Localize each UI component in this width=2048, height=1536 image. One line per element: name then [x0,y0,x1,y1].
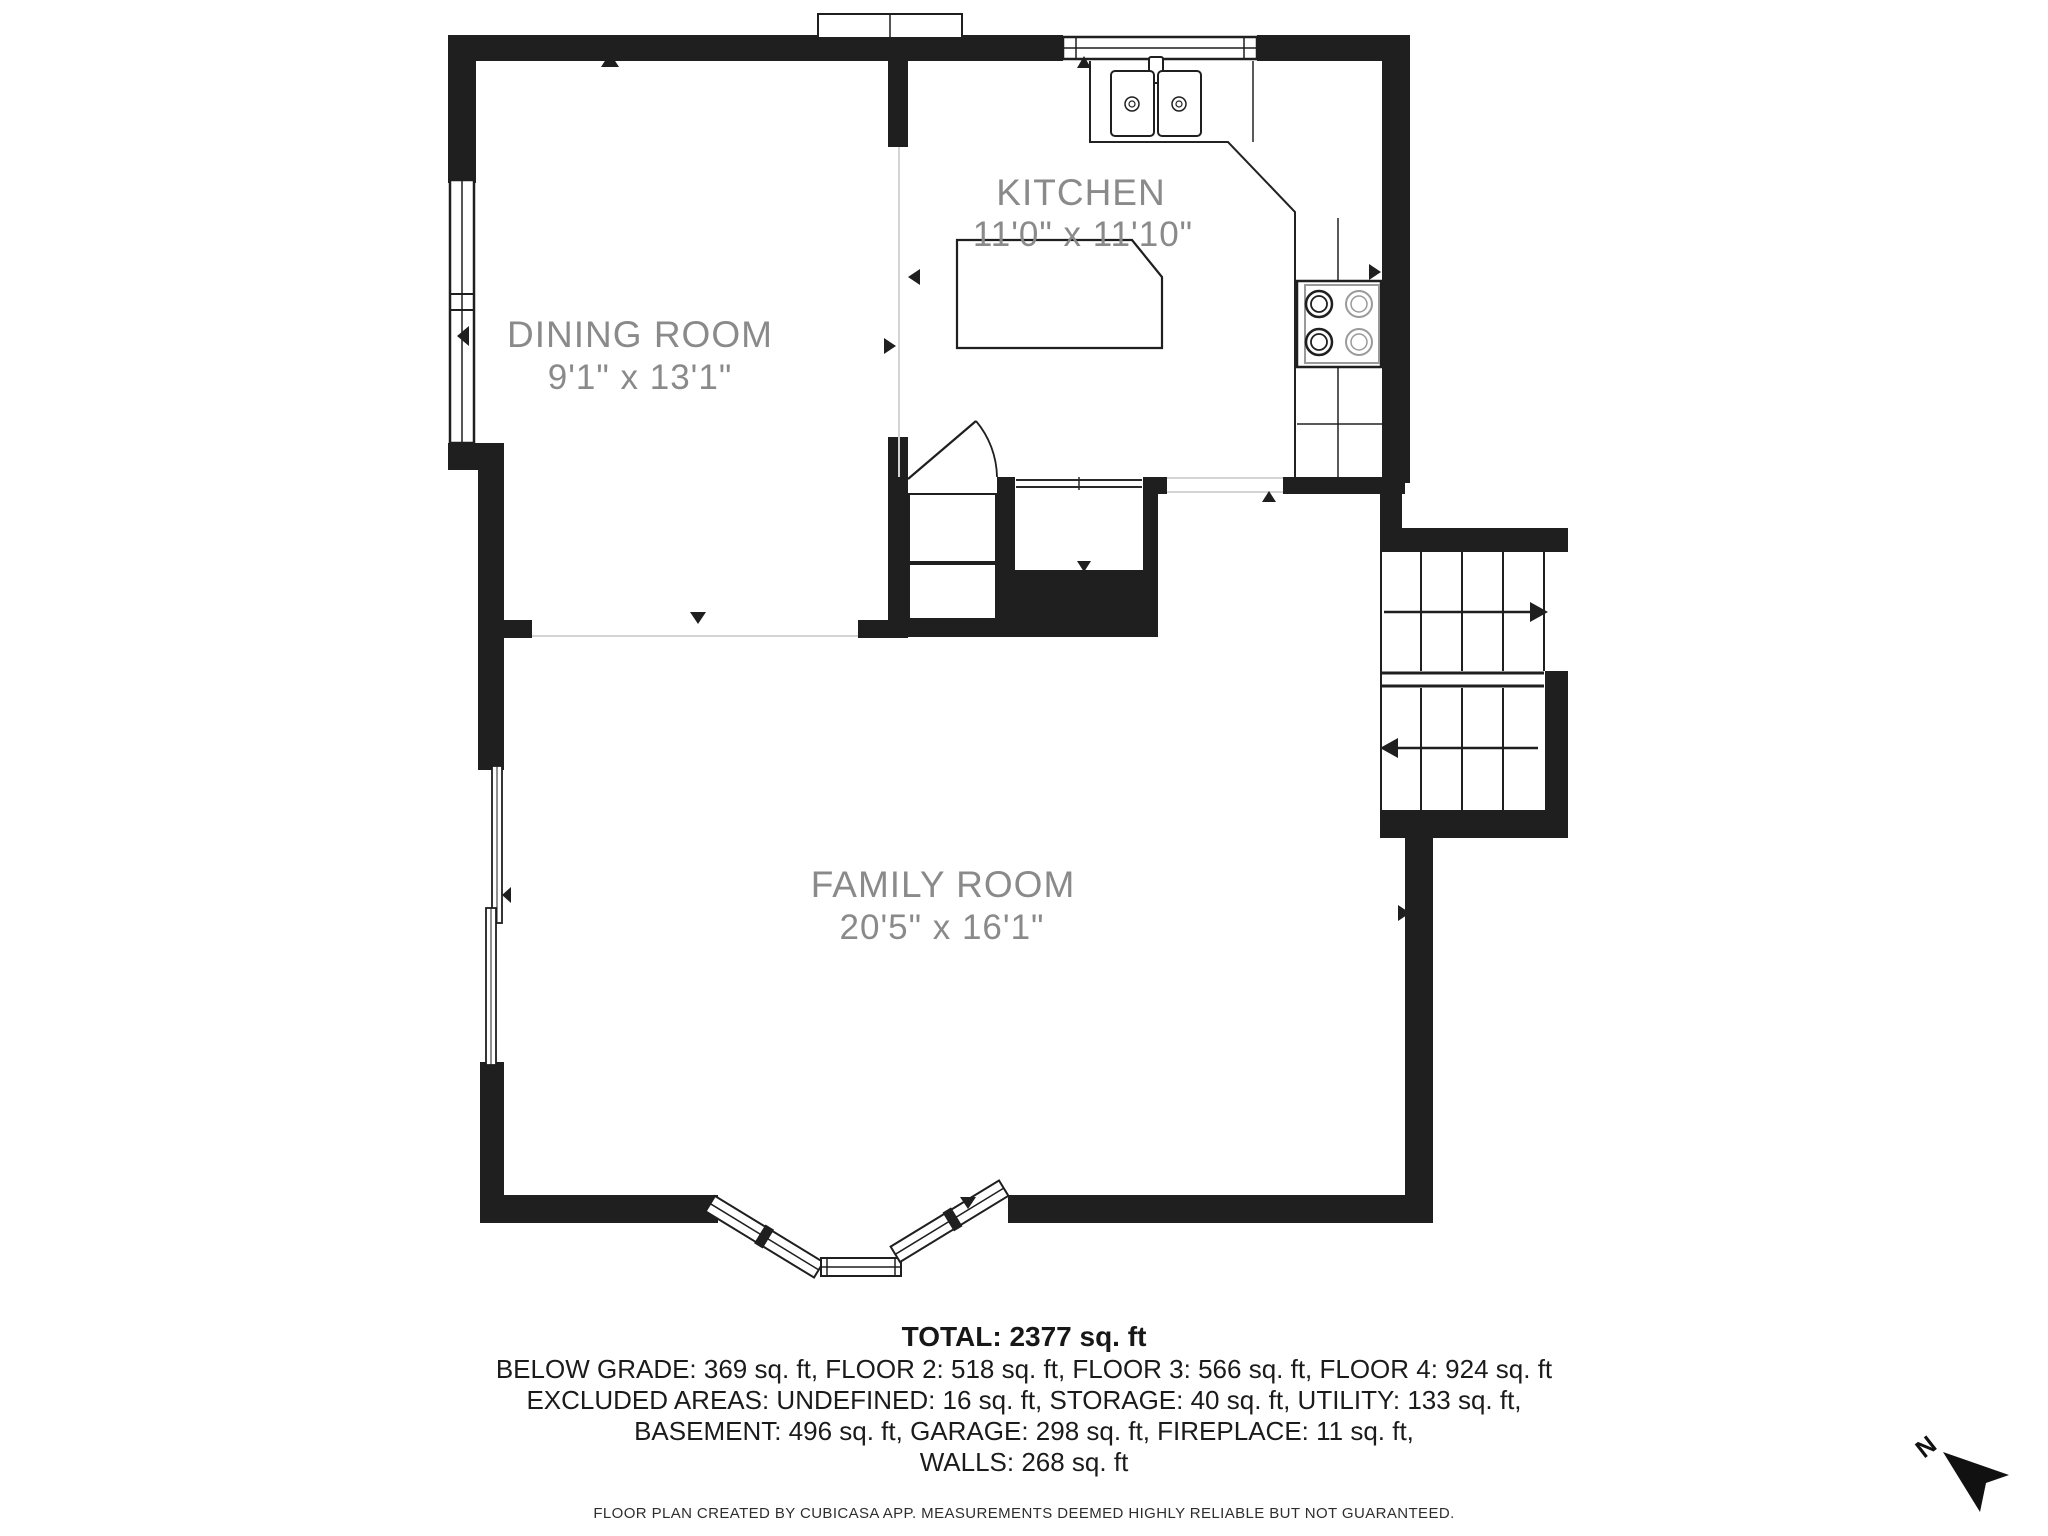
kitchen-dims: 11'0" x 11'10" [973,215,1193,254]
disclaimer-text: FLOOR PLAN CREATED BY CUBICASA APP. MEAS… [593,1505,1454,1522]
marker-left [502,887,511,903]
family-room-label: FAMILY ROOM [811,864,1076,905]
floor-plan-canvas: DINING ROOM 9'1" x 13'1" KITCHEN 11'0" x… [0,0,2048,1536]
north-arrow: N [1910,1431,2009,1512]
wall-bottom-left [480,1195,718,1223]
dining-room-dims: 9'1" x 13'1" [548,358,733,397]
summary-line: BELOW GRADE: 369 sq. ft, FLOOR 2: 518 sq… [496,1354,1553,1384]
wall-pantry-bottom [888,618,997,637]
sink-basin-left [1111,71,1154,136]
walls [448,35,1568,1223]
kitchen-door [908,421,997,479]
wall-bottom-right [1008,1195,1433,1223]
family-room-dims: 20'5" x 16'1" [840,908,1045,947]
wall-top-left [448,35,1063,61]
window-box-exterior [818,14,962,38]
pantry-shelves [909,494,996,619]
wall-stairs-right [1545,671,1568,813]
wall-left-step [448,443,504,470]
sink-basin-right [1158,71,1201,136]
window-family-left-1 [492,766,502,923]
wall-stairs-top [1380,528,1568,552]
summary-line: BASEMENT: 496 sq. ft, GARAGE: 298 sq. ft… [634,1416,1414,1446]
stair-down-arrow [1380,738,1538,758]
summary-line: EXCLUDED AREAS: UNDEFINED: 16 sq. ft, ST… [526,1385,1521,1415]
marker-down [690,612,706,624]
total-area: TOTAL: 2377 sq. ft [902,1321,1147,1352]
wall-kitchen-right [1382,35,1410,483]
summary-line: WALLS: 268 sq. ft [920,1447,1129,1477]
window-kitchen-top [1063,37,1257,59]
wall-family-right [1405,838,1433,1223]
closet-slider-door [1016,477,1142,490]
wall-stairs-bottom [1380,810,1568,838]
wall-left-mid [478,470,504,770]
bay-window-center [821,1258,901,1276]
kitchen-sink [1111,57,1201,136]
window-family-left-2 [486,908,496,1065]
wall-stair-stub [1380,493,1402,530]
kitchen-island [957,240,1162,348]
marker-left [908,269,920,285]
marker-right [1369,264,1381,280]
area-summary: TOTAL: 2377 sq. ft BELOW GRADE: 369 sq. … [496,1321,1553,1522]
dining-room-label: DINING ROOM [507,314,773,355]
stairs [1380,552,1548,810]
wall-kitchen-bottom-right [1283,477,1405,494]
wall-passage-left [1155,477,1167,494]
fireplace-block [997,570,1158,637]
wall-divider-top [888,35,908,147]
bay-window [705,1179,1010,1279]
wall-left-bottom [480,1062,504,1198]
north-arrow-icon [1943,1452,2009,1512]
kitchen-label: KITCHEN [996,172,1165,213]
north-label: N [1910,1431,1941,1464]
stair-up-arrow [1384,602,1548,622]
window-dining-left [450,180,474,443]
wall-opening-stub-left [502,620,532,638]
stove [1297,281,1381,367]
wall-left-top [448,35,476,183]
marker-right [884,338,896,354]
floor-plan-page: { "plan": { "rooms": [ { "name": "DINING… [0,0,2048,1536]
wall-pantry-right [997,477,1015,572]
